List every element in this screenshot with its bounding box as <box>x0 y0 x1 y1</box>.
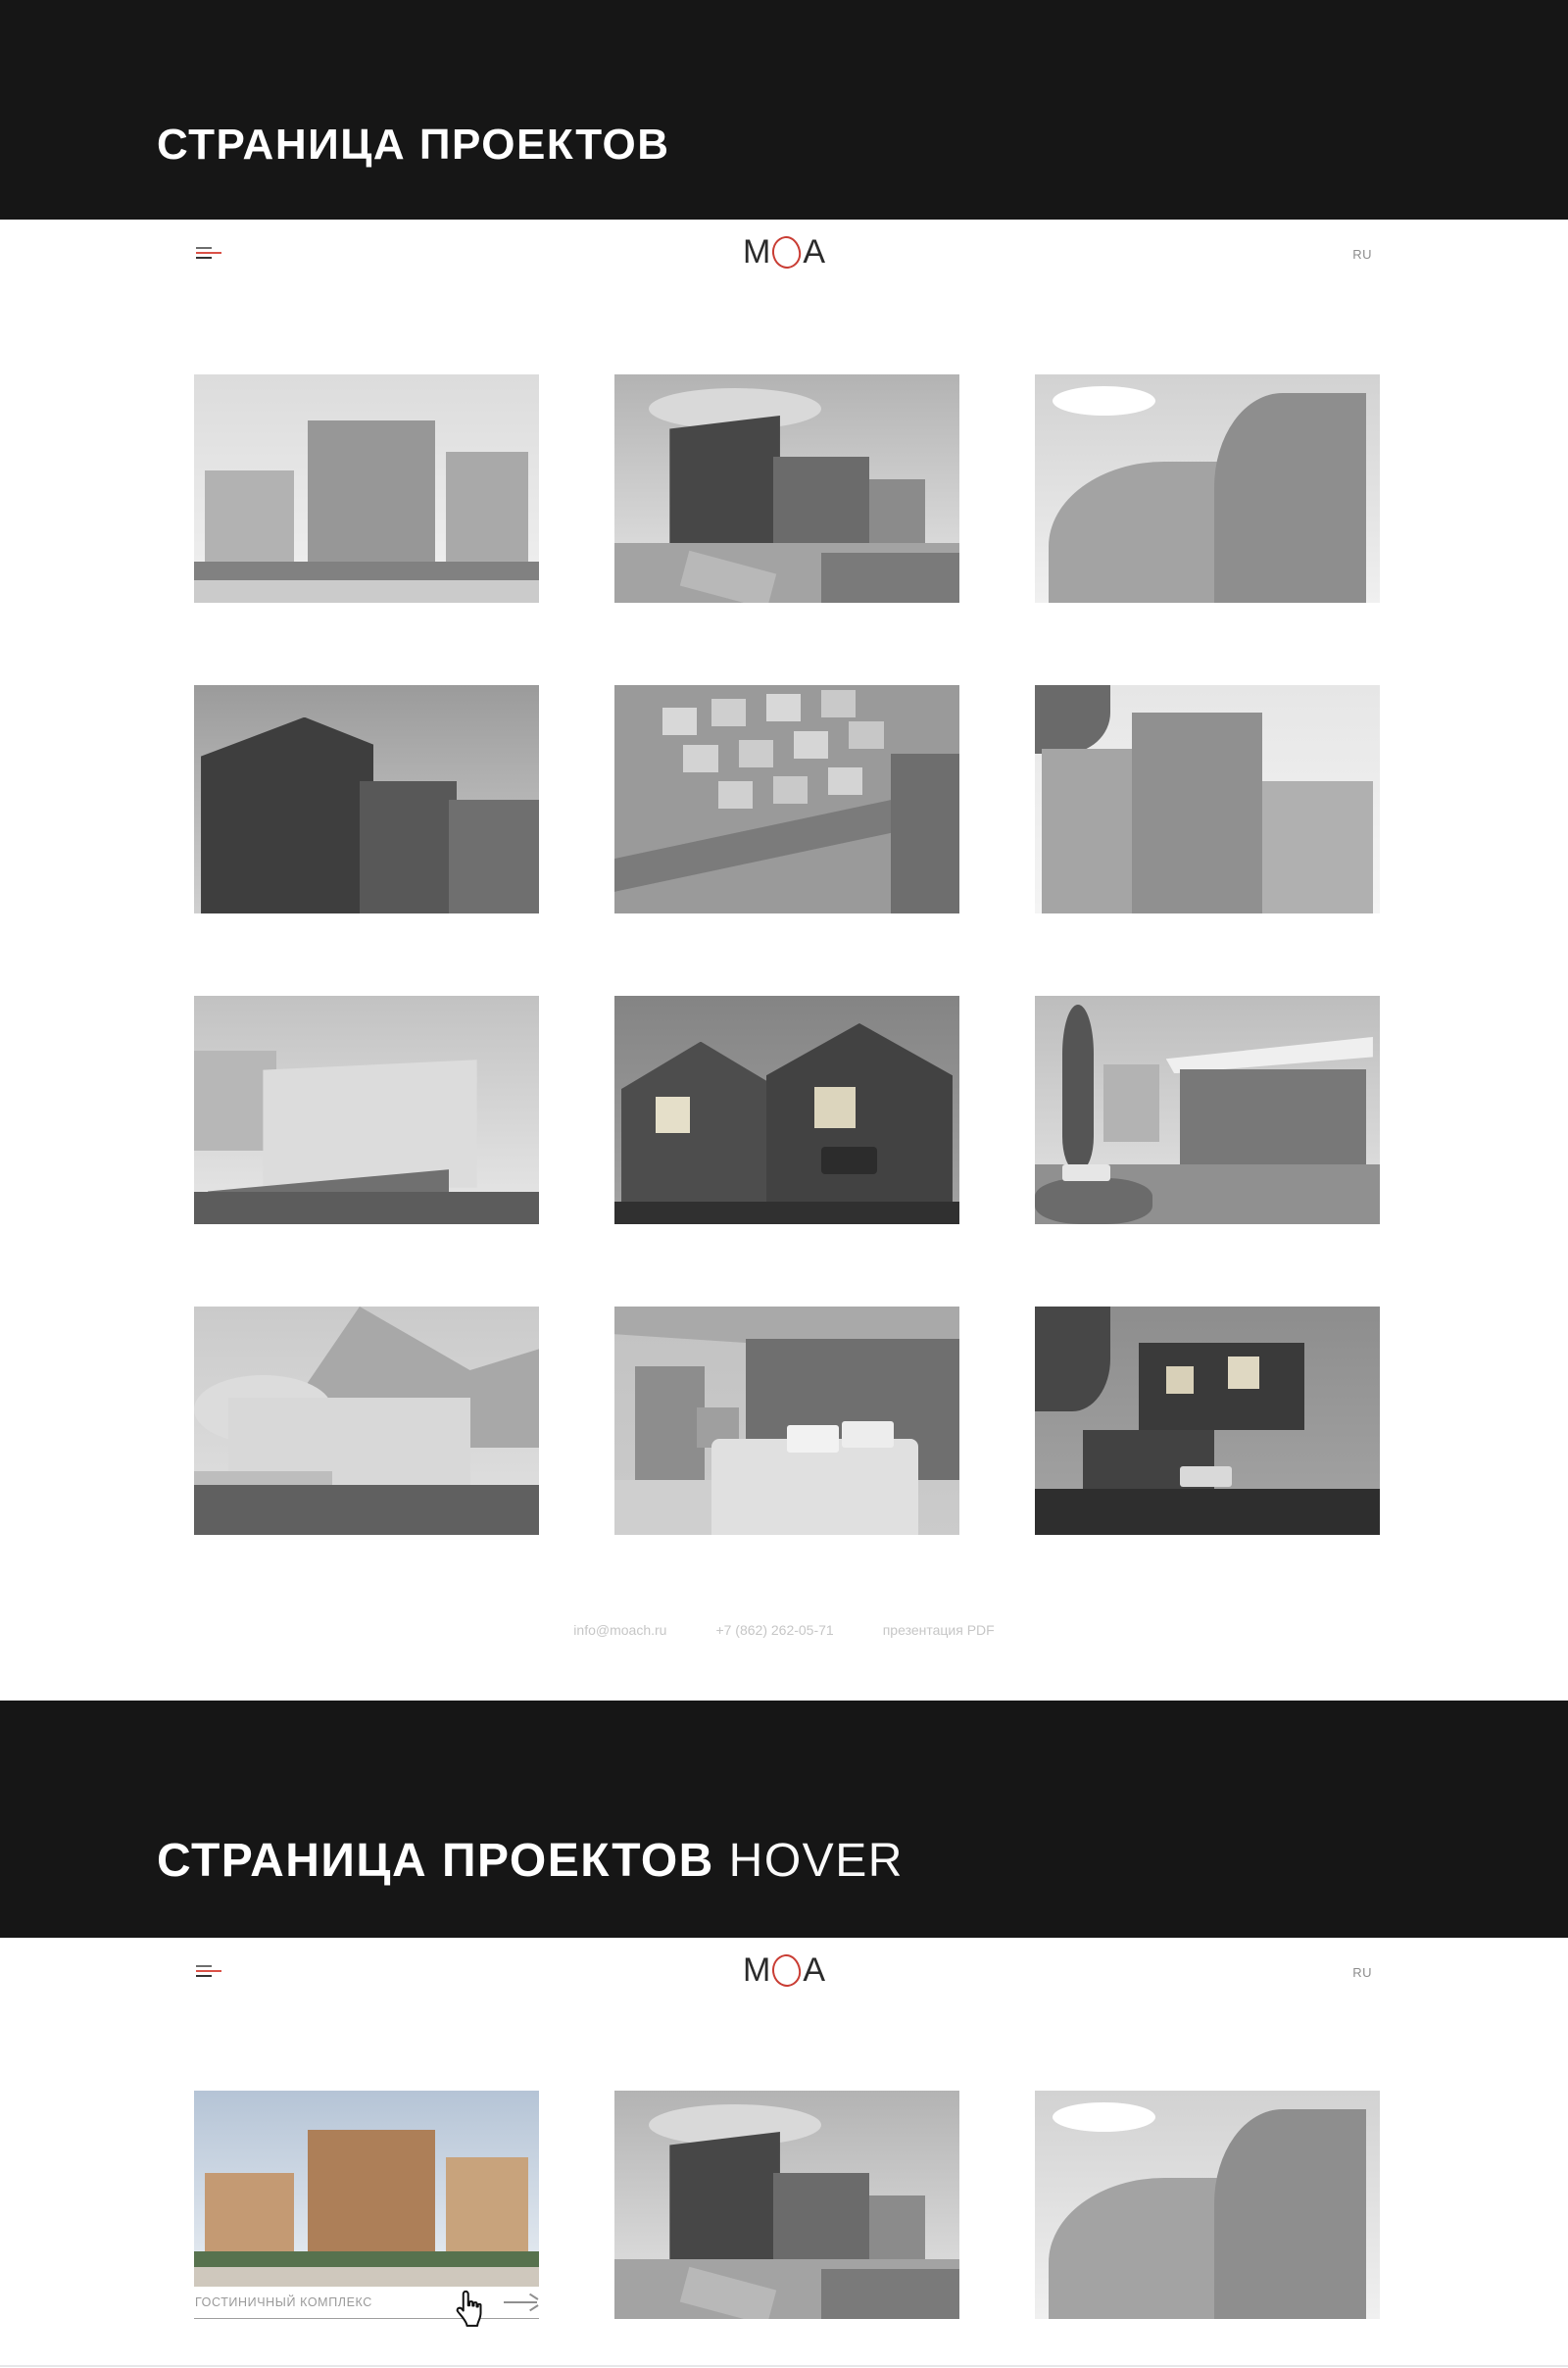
project-image-brick-towers[interactable] <box>1035 685 1380 913</box>
project-card-hotel-complex[interactable]: ГОСТИНИЧНЫЙ КОМПЛЕКС <box>194 2091 539 2319</box>
project-image-corner-building[interactable] <box>614 374 959 603</box>
menu-line-accent <box>196 252 221 254</box>
building-shape <box>1035 685 1110 754</box>
building-shape <box>1139 1343 1304 1430</box>
building-shape <box>1103 1064 1158 1142</box>
phone-link[interactable]: +7 (862) 262-05-71 <box>715 1622 833 1638</box>
project-image-dark-facade[interactable] <box>194 685 539 913</box>
building-shape <box>360 781 457 913</box>
building-shape <box>794 731 828 759</box>
site-header: M A RU <box>0 1951 1568 1997</box>
menu-line <box>196 1975 212 1977</box>
building-shape <box>821 1147 876 1174</box>
building-shape <box>842 1421 894 1449</box>
building-shape <box>194 1485 539 1535</box>
project-image-curved-tower[interactable] <box>1035 2091 1380 2319</box>
logo-o-circle <box>770 234 803 271</box>
menu-line <box>196 257 212 259</box>
language-switcher[interactable]: RU <box>1352 1965 1372 1980</box>
building-shape <box>1035 1307 1110 1411</box>
projects-grid-hover: ГОСТИНИЧНЫЙ КОМПЛЕКС <box>194 2091 1380 2319</box>
page-title: СТРАНИЦА ПРОЕКТОВ <box>157 123 670 167</box>
page-title-text: СТРАНИЦА ПРОЕКТОВ <box>157 1835 714 1887</box>
building-shape <box>766 694 801 721</box>
building-shape <box>1228 1357 1259 1389</box>
logo-letter-a: A <box>803 233 825 271</box>
building-shape <box>446 2157 528 2263</box>
building-shape <box>787 1425 839 1453</box>
building-shape <box>891 754 959 913</box>
page-title-hover: СТРАНИЦА ПРОЕКТОВ HOVER <box>157 1838 904 1885</box>
project-image-pavilion[interactable] <box>1035 996 1380 1224</box>
building-shape <box>773 776 808 804</box>
building-shape <box>194 1192 539 1224</box>
building-shape <box>828 767 862 795</box>
building-shape <box>766 1023 953 1224</box>
building-shape <box>1049 462 1242 603</box>
building-shape <box>263 1060 476 1187</box>
cursor-hand-icon <box>455 2290 484 2334</box>
section-banner-projects: СТРАНИЦА ПРОЕКТОВ <box>0 0 1568 220</box>
logo-letter-m: M <box>743 233 770 271</box>
building-shape <box>449 800 539 914</box>
building-shape <box>683 745 717 772</box>
logo-letter-m: M <box>743 1951 770 1990</box>
building-shape <box>739 740 773 767</box>
building-shape <box>614 1202 959 1224</box>
building-shape <box>1062 1005 1094 1169</box>
project-image-bedroom-interior[interactable] <box>614 1307 959 1535</box>
project-image-aerial-townhouses[interactable] <box>614 685 959 913</box>
building-shape <box>814 1087 856 1128</box>
page-title-hover-suffix: HOVER <box>729 1835 904 1887</box>
building-shape <box>1053 2102 1156 2132</box>
building-shape <box>711 699 746 726</box>
project-caption-row: ГОСТИНИЧНЫЙ КОМПЛЕКС <box>194 2287 539 2318</box>
pdf-presentation-link[interactable]: презентация PDF <box>883 1622 995 1638</box>
building-shape <box>773 2173 870 2264</box>
building-shape <box>1214 393 1366 603</box>
building-shape <box>656 1097 690 1133</box>
building-shape <box>773 457 870 548</box>
building-shape <box>1035 1178 1152 1224</box>
building-shape <box>614 1480 718 1535</box>
building-shape <box>621 1042 780 1224</box>
building-shape <box>201 717 373 913</box>
building-shape <box>669 416 780 548</box>
bottom-divider <box>0 2365 1568 2367</box>
section-banner-projects-hover: СТРАНИЦА ПРОЕКТОВ HOVER <box>0 1701 1568 1938</box>
email-link[interactable]: info@moach.ru <box>573 1622 666 1638</box>
building-shape <box>308 420 435 575</box>
logo-letter-a: A <box>803 1951 825 1990</box>
building-shape <box>1262 781 1373 913</box>
building-shape <box>711 1439 918 1535</box>
building-shape <box>669 2132 780 2264</box>
language-switcher[interactable]: RU <box>1352 247 1372 262</box>
project-image-mountain-hotel[interactable] <box>194 1307 539 1535</box>
building-shape <box>446 452 528 575</box>
building-shape <box>1049 2178 1242 2319</box>
building-shape <box>1035 1489 1380 1535</box>
building-shape <box>1214 2109 1366 2319</box>
building-shape <box>869 479 924 548</box>
building-shape <box>1062 1164 1110 1180</box>
project-image-gabled-houses[interactable] <box>614 996 959 1224</box>
building-shape <box>718 781 753 809</box>
building-shape <box>194 580 539 603</box>
menu-button[interactable] <box>196 247 221 261</box>
menu-line-accent <box>196 1970 221 1972</box>
project-image-corner-building[interactable] <box>614 2091 959 2319</box>
logo-o-circle <box>770 1952 803 1989</box>
project-caption: ГОСТИНИЧНЫЙ КОМПЛЕКС <box>195 2295 372 2309</box>
building-shape <box>821 2269 959 2319</box>
moa-logo[interactable]: M A <box>743 233 825 271</box>
project-image-hillside-villas[interactable] <box>1035 1307 1380 1535</box>
menu-line <box>196 1965 212 1967</box>
project-image-curved-tower[interactable] <box>1035 374 1380 603</box>
menu-button[interactable] <box>196 1965 221 1979</box>
building-shape <box>662 708 697 735</box>
building-shape <box>1132 713 1263 913</box>
site-header: M A RU <box>0 233 1568 278</box>
building-shape <box>205 470 295 575</box>
building-shape <box>635 1366 704 1481</box>
building-shape <box>308 2130 435 2263</box>
project-image-hotel-complex-color[interactable] <box>194 2091 539 2287</box>
building-shape <box>869 2195 924 2264</box>
building-shape <box>1180 1069 1366 1170</box>
building-shape <box>849 721 883 749</box>
building-shape <box>1053 386 1156 416</box>
building-shape <box>1166 1366 1194 1394</box>
building-shape <box>194 2267 539 2287</box>
moa-logo[interactable]: M A <box>743 1951 825 1990</box>
project-image-hotel-complex[interactable] <box>194 374 539 603</box>
menu-line <box>196 247 212 249</box>
building-shape <box>205 2173 295 2263</box>
project-image-hillside-apartments[interactable] <box>194 996 539 1224</box>
projects-grid <box>194 374 1380 1535</box>
building-shape <box>821 690 856 717</box>
design-mockup: СТРАНИЦА ПРОЕКТОВ M A RU info@moach.ru +… <box>0 0 1568 2368</box>
building-shape <box>821 553 959 603</box>
building-shape <box>1180 1466 1232 1487</box>
page-title-text: СТРАНИЦА ПРОЕКТОВ <box>157 121 670 169</box>
arrow-right-icon <box>504 2301 537 2303</box>
footer-contacts: info@moach.ru +7 (862) 262-05-71 презент… <box>0 1622 1568 1638</box>
